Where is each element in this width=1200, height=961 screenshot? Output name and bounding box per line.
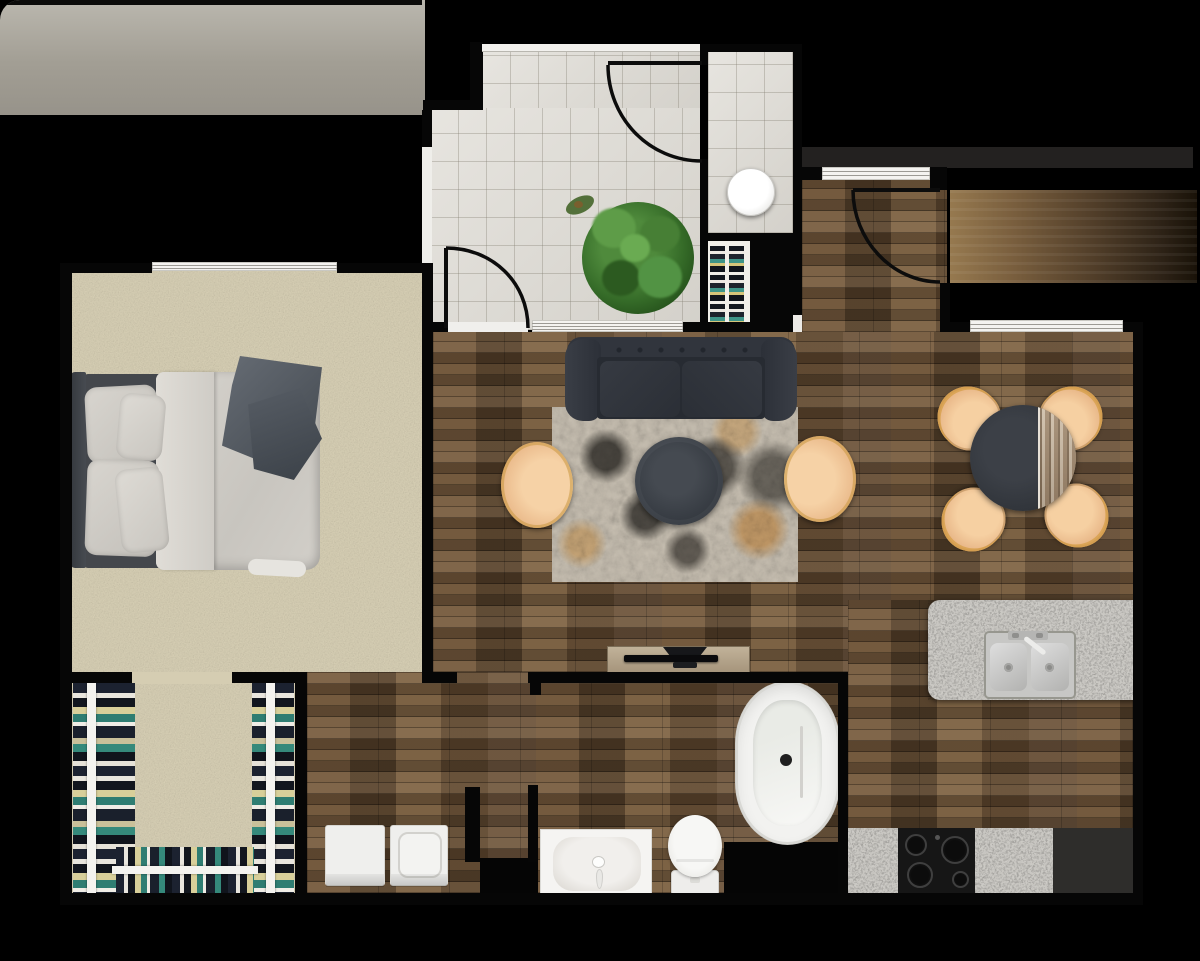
washer: [390, 825, 448, 886]
dryer-shadow: [326, 874, 384, 887]
plant-leaf-cluster: [620, 234, 650, 262]
wall-entry-north-white: [482, 44, 700, 52]
entry-door-threshold: [448, 322, 528, 332]
sink-drain-right: [1045, 663, 1054, 672]
burner-small-top: [905, 834, 927, 856]
dryer: [325, 825, 385, 886]
wall-bedroom-north-left: [60, 263, 152, 273]
wall-niche-west: [700, 240, 708, 332]
wall-dining-window-jamb-left: [950, 322, 970, 332]
toilet: [666, 815, 724, 897]
bathroom-corner-fill: [724, 842, 838, 895]
floor-plan-canvas: [0, 0, 1200, 961]
dining-table: [970, 405, 1076, 511]
wall-entry-west-upper: [422, 110, 432, 147]
toilet-lid: [668, 815, 722, 877]
pillow: [115, 392, 167, 462]
wall-east: [1133, 322, 1143, 903]
wall-balcony-east-white: [422, 147, 432, 263]
counter-left: [848, 828, 898, 895]
bathtub: [736, 682, 839, 844]
pillow: [114, 466, 171, 555]
wall-nook-north: [700, 44, 797, 52]
potted-plant: [582, 202, 694, 314]
closet-rail-bottom: [112, 866, 258, 874]
coffee-table: [635, 437, 723, 525]
exterior-corridor: [950, 190, 1197, 283]
sofa: [565, 337, 797, 422]
burner-large-right: [941, 836, 969, 864]
wall-entry-south-right: [683, 322, 797, 332]
washer-lid: [398, 832, 442, 878]
balcony-edge: [0, 0, 422, 5]
faucet-handle-right: [1036, 633, 1043, 638]
shoe-shelf-column-right: [729, 246, 744, 322]
wall-entry-step: [423, 100, 483, 110]
wall-nook-door-jamb-bottom: [700, 159, 708, 240]
cooktop: [898, 828, 975, 895]
wall-niche-east-block: [750, 233, 797, 332]
wall-hall-north-left: [802, 167, 822, 180]
wall-kitchen-west: [838, 672, 848, 903]
sink-drain-left: [1004, 663, 1013, 672]
armchair-left: [501, 442, 573, 528]
closet-rail-left: [87, 682, 96, 893]
balcony-floor: [0, 0, 425, 115]
burner-large-left: [907, 862, 933, 888]
wall-living-south-stub: [422, 672, 457, 683]
wall-bedroom-south-left: [72, 672, 132, 683]
closet-opening-floor: [132, 672, 232, 684]
wall-nook-door-jamb-top: [700, 52, 708, 65]
sofa-cushion-left: [600, 361, 680, 417]
wall-south: [60, 893, 1143, 905]
dining-table-light-section: [1038, 405, 1076, 511]
plant-leaf-cluster: [638, 256, 682, 298]
double-sink: [984, 631, 1076, 699]
entry-floor-upper: [482, 52, 700, 112]
wall-white-cap: [793, 315, 802, 332]
neighbor-structure-band: [797, 147, 1193, 168]
wall-bedroom-east: [422, 263, 433, 683]
sofa-right-arm: [761, 339, 797, 421]
bathtub-drain: [780, 754, 792, 766]
tv-screen: [624, 655, 718, 662]
wall-corridor-stub-left: [465, 787, 480, 862]
wall-hall-north-right: [930, 167, 947, 190]
wall-entry-south-left: [433, 322, 448, 332]
washer-shadow: [391, 874, 447, 887]
wall-dining-window-jamb-right: [1123, 322, 1133, 332]
plant-seed-pod: [574, 201, 583, 208]
closet-rail-right: [266, 682, 275, 893]
living-partition-window: [532, 320, 683, 332]
toilet-lid-seam: [676, 859, 714, 862]
sheet-edge: [248, 558, 307, 577]
wall-bathroom-north: [528, 672, 847, 683]
round-side-table: [727, 168, 775, 216]
wall-closet-east: [295, 672, 307, 903]
wall-bathroom-west-stub: [530, 672, 541, 695]
sofa-left-arm: [565, 339, 601, 421]
wall-west: [60, 263, 72, 903]
bathtub-overflow: [800, 726, 803, 798]
bathroom-vanity: [540, 829, 652, 897]
plant-leaf-cluster: [602, 260, 640, 296]
cooktop-knob: [935, 835, 940, 840]
bedroom-balcony-window: [152, 262, 337, 271]
hall-window: [822, 167, 930, 180]
tv-stand: [673, 662, 697, 668]
wall-hall-east-stub: [940, 283, 950, 332]
entry-hall-floor: [802, 180, 947, 332]
dining-window: [970, 320, 1123, 332]
wall-bedroom-north-right: [337, 263, 422, 273]
wall-corridor-stub-right: [528, 785, 538, 862]
dark-appliance: [1053, 828, 1135, 895]
shoe-shelf-column-left: [710, 246, 725, 322]
faucet-handle-left: [1012, 633, 1019, 638]
corridor-end-fill: [480, 858, 538, 895]
bed-headboard: [70, 372, 86, 568]
counter-right: [975, 828, 1053, 895]
sofa-cushion-right: [682, 361, 762, 417]
armchair-right: [784, 436, 856, 522]
vanity-faucet-base: [592, 856, 605, 868]
toilet-flush-button: [690, 877, 700, 883]
burner-small-bottom: [952, 871, 969, 888]
